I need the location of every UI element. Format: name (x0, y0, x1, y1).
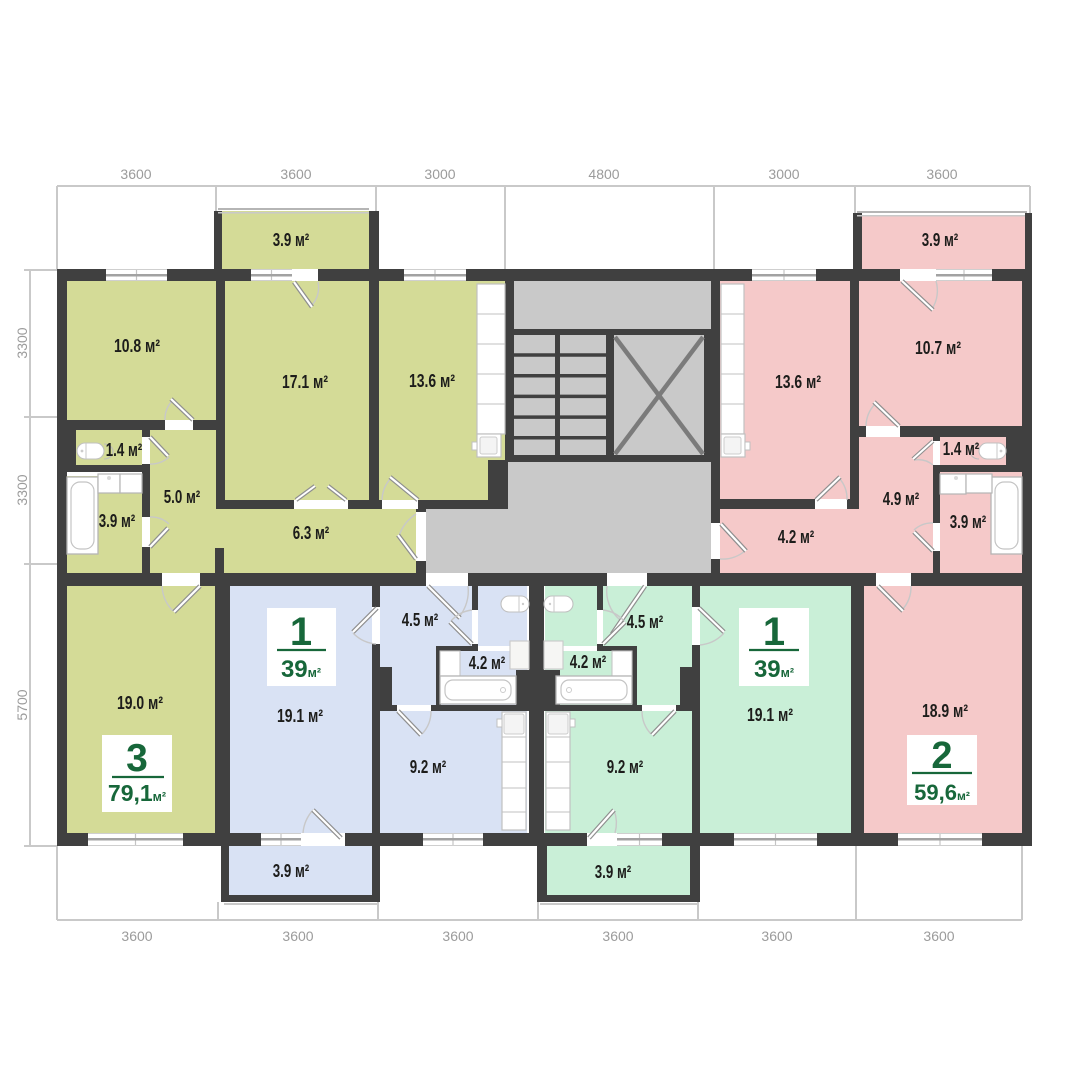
svg-text:3.9 м²: 3.9 м² (273, 230, 310, 250)
svg-text:13.6 м²: 13.6 м² (409, 371, 455, 391)
svg-text:3000: 3000 (424, 166, 455, 182)
svg-text:1.4 м²: 1.4 м² (943, 439, 980, 459)
svg-text:3.9 м²: 3.9 м² (595, 862, 632, 882)
svg-text:3600: 3600 (926, 166, 957, 182)
svg-text:18.9 м²: 18.9 м² (922, 701, 968, 721)
svg-text:1: 1 (290, 610, 312, 654)
svg-text:3600: 3600 (923, 928, 954, 944)
svg-text:2: 2 (931, 735, 952, 777)
svg-text:1: 1 (763, 610, 785, 654)
svg-text:3600: 3600 (282, 928, 313, 944)
svg-text:3600: 3600 (602, 928, 633, 944)
svg-text:3.9 м²: 3.9 м² (99, 511, 136, 531)
svg-text:3.9 м²: 3.9 м² (922, 230, 959, 250)
svg-text:4.9 м²: 4.9 м² (883, 489, 920, 509)
svg-text:4.5 м²: 4.5 м² (402, 610, 439, 630)
svg-text:19.1 м²: 19.1 м² (747, 705, 793, 725)
svg-text:3.9 м²: 3.9 м² (950, 512, 987, 532)
svg-text:9.2 м²: 9.2 м² (607, 757, 644, 777)
svg-text:3.9 м²: 3.9 м² (273, 861, 310, 881)
svg-text:3600: 3600 (120, 166, 151, 182)
svg-text:1.4 м²: 1.4 м² (106, 440, 143, 460)
svg-text:13.6 м²: 13.6 м² (775, 372, 821, 392)
svg-text:3000: 3000 (768, 166, 799, 182)
svg-text:10.7 м²: 10.7 м² (915, 338, 961, 358)
svg-text:3600: 3600 (442, 928, 473, 944)
svg-text:19.1 м²: 19.1 м² (277, 706, 323, 726)
svg-text:3600: 3600 (121, 928, 152, 944)
svg-text:4.2 м²: 4.2 м² (778, 527, 815, 547)
svg-text:4800: 4800 (588, 166, 619, 182)
svg-text:9.2 м²: 9.2 м² (410, 757, 447, 777)
svg-text:3300: 3300 (14, 327, 30, 358)
svg-text:4.2 м²: 4.2 м² (570, 652, 607, 672)
svg-text:4.2 м²: 4.2 м² (469, 653, 506, 673)
svg-text:6.3 м²: 6.3 м² (293, 523, 330, 543)
svg-text:5.0 м²: 5.0 м² (164, 487, 201, 507)
svg-text:17.1 м²: 17.1 м² (282, 372, 328, 392)
svg-text:19.0 м²: 19.0 м² (117, 693, 163, 713)
svg-text:3600: 3600 (280, 166, 311, 182)
svg-text:3600: 3600 (761, 928, 792, 944)
svg-text:3300: 3300 (14, 474, 30, 505)
svg-text:3: 3 (126, 737, 148, 780)
svg-text:10.8 м²: 10.8 м² (114, 336, 160, 356)
svg-text:4.5 м²: 4.5 м² (627, 612, 664, 632)
svg-text:5700: 5700 (14, 689, 30, 720)
